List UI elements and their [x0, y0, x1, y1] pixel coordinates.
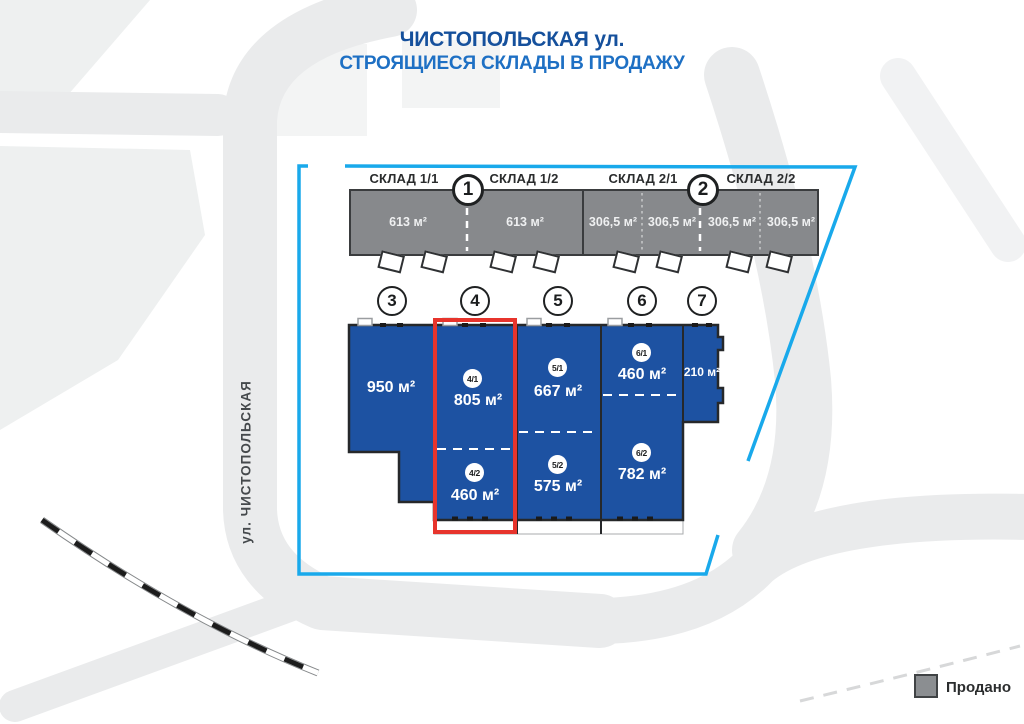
- legend-sold-swatch: [914, 674, 938, 698]
- building-7-number-badge: 7: [687, 286, 717, 316]
- page-title: ЧИСТОПОЛЬСКАЯ ул.: [400, 28, 625, 52]
- building-3-number-badge: 3: [377, 286, 407, 316]
- unit-region-sklad-1-2[interactable]: [467, 190, 583, 255]
- section-label-sklad-1-2: СКЛАД 1/2: [489, 171, 558, 186]
- unit-region-sklad-2-2[interactable]: [700, 190, 818, 255]
- building-6-number-badge: 6: [627, 286, 657, 316]
- unit-region-5-1[interactable]: [517, 325, 601, 432]
- section-label-sklad-1-1: СКЛАД 1/1: [369, 171, 438, 186]
- unit-region-5-2[interactable]: [517, 432, 601, 520]
- section-label-sklad-2-1: СКЛАД 2/1: [608, 171, 677, 186]
- unit-region-3[interactable]: [349, 325, 434, 452]
- unit-region-4-1[interactable]: [434, 325, 517, 449]
- legend-sold-label: Продано: [946, 679, 1011, 696]
- building-4-number-badge: 4: [460, 286, 490, 316]
- unit-region-6-2[interactable]: [601, 395, 683, 520]
- site-plan: ЧИСТОПОЛЬСКАЯ ул. СТРОЯЩИЕСЯ СКЛАДЫ В ПР…: [0, 0, 1024, 724]
- section-label-sklad-2-2: СКЛАД 2/2: [726, 171, 795, 186]
- building-5-number-badge: 5: [543, 286, 573, 316]
- unit-region-sklad-2-1[interactable]: [583, 190, 700, 255]
- unit-region-6-1[interactable]: [601, 325, 683, 395]
- page-subtitle: СТРОЯЩИЕСЯ СКЛАДЫ В ПРОДАЖУ: [339, 53, 684, 75]
- street-name-label: ул. ЧИСТОПОЛЬСКАЯ: [239, 380, 254, 544]
- unit-region-sklad-1-1[interactable]: [350, 190, 467, 255]
- unit-region-4-2[interactable]: [434, 449, 517, 520]
- unit-region-7[interactable]: [683, 325, 718, 422]
